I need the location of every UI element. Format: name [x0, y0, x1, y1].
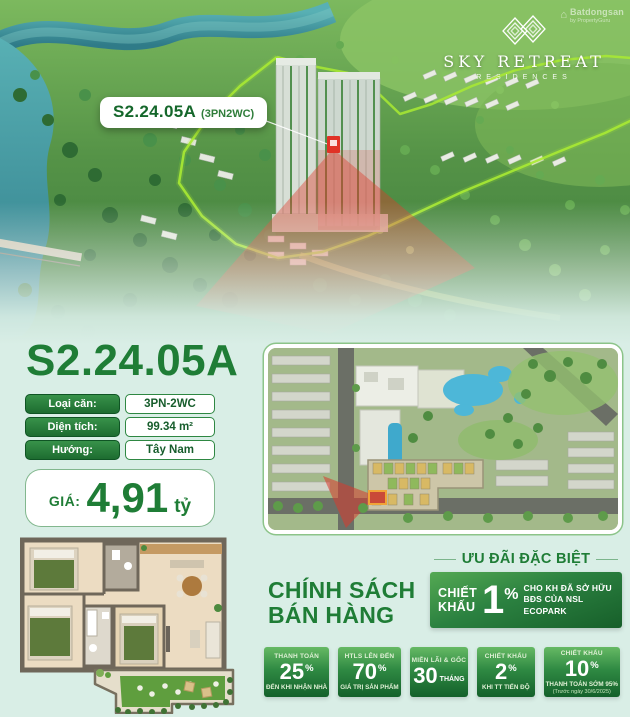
spec-label: Hướng: [25, 440, 120, 460]
sky-retreat-diamond-icon [501, 14, 547, 48]
spec-row-area: Diện tích: 99.34 m² [25, 417, 215, 437]
price-label: GIÁ: [49, 493, 81, 509]
spec-label: Loại căn: [25, 394, 120, 414]
unit-title: S2.24.05A [26, 336, 238, 386]
spec-table: Loại căn: 3PN-2WC Diện tích: 99.34 m² Hư… [25, 394, 215, 463]
badge-payment-25: THANH TOÁN 25% ĐẾN KHI NHẬN NHÀ [264, 647, 329, 697]
spec-value: 99.34 m² [125, 417, 215, 437]
sales-policy-line1: CHÍNH SÁCH [268, 578, 415, 603]
special-offer-title: ƯU ĐÃI ĐẶC BIỆT [462, 551, 591, 567]
aerial-photo: ⌂ Batdongsan by PropertyGuru SKY RETREAT… [0, 0, 630, 348]
offer-description: CHO KH ĐÃ SỞ HỮU BĐS CỦA NSL ECOPARK [523, 583, 614, 617]
price-value: 4,91 [86, 477, 168, 519]
logo-title: SKY RETREAT [434, 52, 614, 71]
spec-value: Tây Nam [125, 440, 215, 460]
brand-logo: SKY RETREAT RESIDENCES [434, 14, 614, 81]
policy-badges: THANH TOÁN 25% ĐẾN KHI NHẬN NHÀ HTLS LÊN… [264, 647, 620, 697]
sales-policy-line2: BÁN HÀNG [268, 603, 415, 628]
badge-grace-30: MIỄN LÃI & GỐC 30THÁNG [410, 647, 468, 697]
title-dash-right [596, 559, 618, 560]
badge-discount-10: CHIẾT KHẤU 10% THANH TOÁN SỚM 95% (Trước… [544, 647, 620, 697]
master-plan-image [264, 344, 622, 534]
floor-plan-image [20, 536, 236, 714]
unit-type: (3PN2WC) [201, 108, 254, 120]
unit-code: S2.24.05A [113, 102, 196, 122]
special-offer: ƯU ĐÃI ĐẶC BIỆT CHIẾT KHẤU 1% CHO KH ĐÃ … [430, 551, 622, 628]
title-dash-left [434, 559, 456, 560]
spec-value: 3PN-2WC [125, 394, 215, 414]
offer-percent: 1% [482, 583, 518, 617]
special-offer-title-row: ƯU ĐÃI ĐẶC BIỆT [430, 551, 622, 567]
unit-callout-label: S2.24.05A (3PN2WC) [100, 97, 267, 128]
badge-discount-2: CHIẾT KHẤU 2% KHI TT TIẾN ĐỘ [477, 647, 534, 697]
spec-label: Diện tích: [25, 417, 120, 437]
property-flyer: ⌂ Batdongsan by PropertyGuru SKY RETREAT… [0, 0, 630, 717]
spec-row-direction: Hướng: Tây Nam [25, 440, 215, 460]
special-offer-box: CHIẾT KHẤU 1% CHO KH ĐÃ SỞ HỮU BĐS CỦA N… [430, 572, 622, 628]
price-box: GIÁ: 4,91 tỷ [25, 469, 215, 527]
offer-prefix: CHIẾT KHẤU [438, 586, 477, 615]
spec-row-type: Loại căn: 3PN-2WC [25, 394, 215, 414]
sales-policy-title: CHÍNH SÁCH BÁN HÀNG [268, 578, 415, 629]
price-unit: tỷ [174, 496, 191, 518]
logo-subtitle: RESIDENCES [434, 74, 614, 81]
badge-loan-70: HTLS LÊN ĐẾN 70% GIÁ TRỊ SẢN PHẨM [338, 647, 400, 697]
